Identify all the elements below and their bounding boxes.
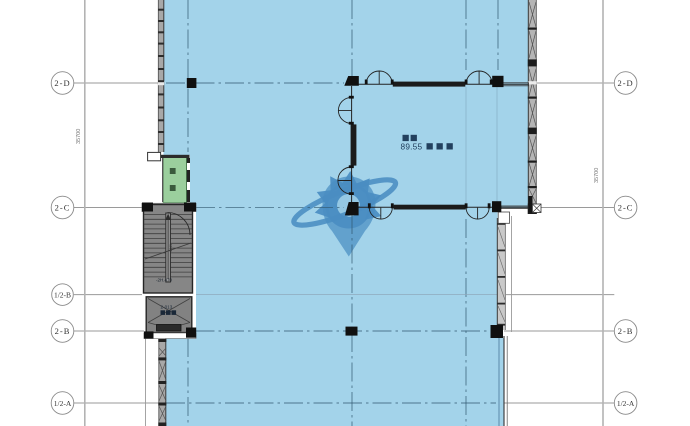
svg-text:1011: 1011 <box>169 244 173 252</box>
svg-text:2-013: 2-013 <box>161 305 173 310</box>
svg-text:2-D: 2-D <box>54 78 70 88</box>
svg-text:-2H.470: -2H.470 <box>156 278 173 283</box>
svg-text:1/2-B: 1/2-B <box>54 291 71 300</box>
svg-text:2-B: 2-B <box>55 326 71 336</box>
svg-text:89.55: 89.55 <box>401 141 423 151</box>
svg-text:2-D: 2-D <box>617 78 633 88</box>
svg-text:2-B: 2-B <box>618 326 634 336</box>
svg-text:1/2-A: 1/2-A <box>54 399 72 408</box>
svg-text:35700: 35700 <box>594 168 600 183</box>
svg-text:35700: 35700 <box>76 129 82 144</box>
svg-text:1/2-A: 1/2-A <box>617 399 635 408</box>
svg-text:2-C: 2-C <box>618 203 634 213</box>
svg-text:2-C: 2-C <box>55 203 71 213</box>
